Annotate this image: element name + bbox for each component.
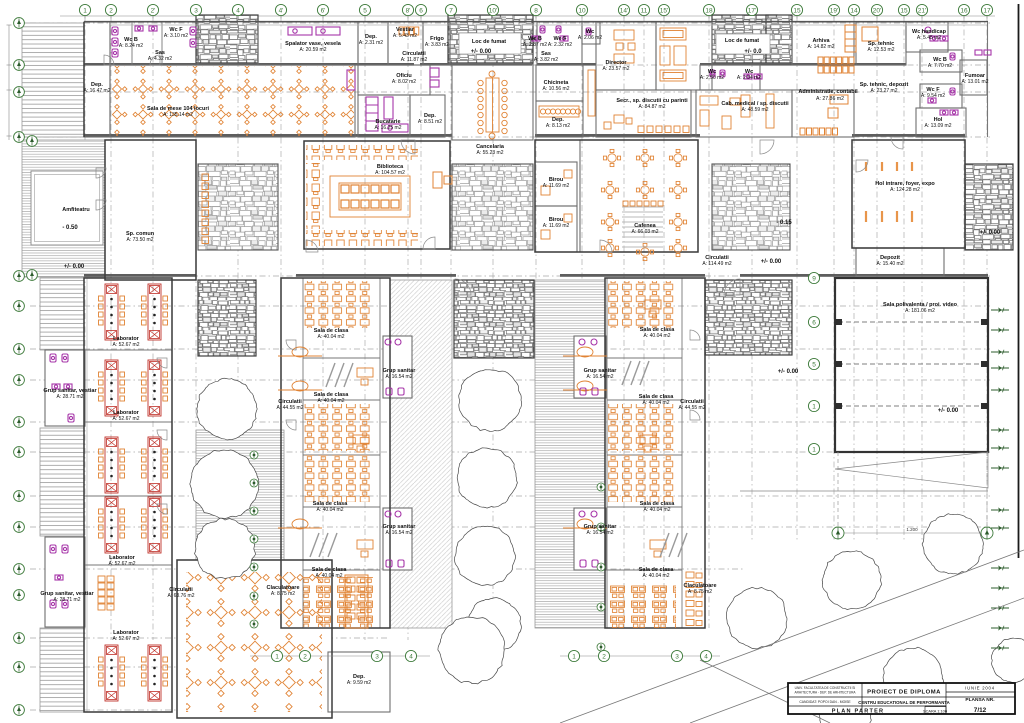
svg-text:+/- 0.00: +/- 0.00 [64, 264, 85, 270]
svg-text:Circulatii: Circulatii [278, 399, 302, 405]
svg-text:Depozit: Depozit [880, 255, 900, 261]
svg-text:Loc de fumat: Loc de fumat [725, 38, 759, 44]
svg-text:+/- 0.00: +/- 0.00 [980, 230, 1001, 236]
svg-text:Laborator: Laborator [113, 336, 140, 342]
svg-text:Fumoar: Fumoar [965, 73, 986, 79]
svg-text:14: 14 [850, 7, 858, 14]
svg-text:Sala de clasa: Sala de clasa [313, 501, 348, 507]
svg-text:CENTRU EDUCATIONAL DE PERFORMA: CENTRU EDUCATIONAL DE PERFORMANTA [858, 700, 949, 705]
svg-text:Sala de clasa: Sala de clasa [640, 501, 675, 507]
svg-text:10: 10 [578, 7, 586, 14]
svg-text:Sala de clasa: Sala de clasa [314, 328, 349, 334]
svg-text:A: 8.75 m2: A: 8.75 m2 [271, 591, 295, 597]
svg-text:16: 16 [960, 7, 968, 14]
svg-text:A: 20.59 m2: A: 20.59 m2 [300, 47, 327, 53]
svg-text:Administratie, contabil: Administratie, contabil [798, 89, 858, 95]
svg-text:A: 52.67 m2: A: 52.67 m2 [113, 416, 140, 422]
svg-text:1: 1 [275, 653, 279, 660]
svg-text:2: 2 [109, 7, 113, 14]
svg-text:Hol: Hol [934, 117, 943, 123]
svg-text:A: 8.24 m2: A: 8.24 m2 [119, 43, 143, 49]
svg-text:A: 12.53 m2: A: 12.53 m2 [868, 47, 895, 53]
svg-text:Wc: Wc [745, 69, 753, 75]
svg-text:8': 8' [406, 7, 411, 14]
svg-text:Grup sanitar, vestiar: Grup sanitar, vestiar [40, 591, 94, 597]
svg-text:A: 40.04 m2: A: 40.04 m2 [644, 333, 671, 339]
svg-text:A: 73.50 m2: A: 73.50 m2 [127, 237, 154, 243]
svg-text:A: 3.10 m2: A: 3.10 m2 [164, 33, 188, 39]
svg-text:1: 1 [572, 653, 576, 660]
svg-text:Sala polivalenta / proi. video: Sala polivalenta / proi. video [883, 302, 958, 308]
svg-text:Frigo: Frigo [430, 36, 444, 42]
svg-text:Laborator: Laborator [109, 555, 136, 561]
svg-text:A: 28.71 m2: A: 28.71 m2 [57, 394, 84, 400]
svg-text:Cafenea: Cafenea [634, 223, 656, 229]
svg-text:Sala de clasa: Sala de clasa [639, 567, 674, 573]
svg-text:A: 10.56 m2: A: 10.56 m2 [543, 86, 570, 92]
svg-text:Sp. tehnic: Sp. tehnic [868, 41, 894, 47]
svg-text:A: 40.04 m2: A: 40.04 m2 [318, 398, 345, 404]
svg-text:A: 5.43 m2: A: 5.43 m2 [393, 33, 417, 39]
svg-text:Amfiteatru: Amfiteatru [62, 207, 90, 213]
svg-text:Dep.: Dep. [552, 117, 564, 123]
svg-text:4: 4 [704, 653, 708, 660]
svg-text:1: 1 [812, 446, 816, 453]
svg-text:A: 11.69 m2: A: 11.69 m2 [543, 183, 570, 189]
svg-text:15: 15 [900, 7, 908, 14]
svg-text:Wc F: Wc F [926, 87, 940, 93]
svg-text:Grup sanitar, vestiar: Grup sanitar, vestiar [43, 388, 97, 394]
svg-text:A: 40.04 m2: A: 40.04 m2 [317, 507, 344, 513]
svg-text:A: 13.01 m2: A: 13.01 m2 [962, 79, 989, 85]
svg-text:17': 17' [748, 7, 756, 14]
svg-text:PLAN PARTER: PLAN PARTER [832, 708, 885, 714]
svg-text:A: 2.06 m2: A: 2.06 m2 [578, 35, 602, 41]
svg-text:7: 7 [449, 7, 453, 14]
svg-text:Vestiar: Vestiar [396, 27, 415, 33]
svg-text:SCARA 1:100: SCARA 1:100 [923, 708, 948, 713]
svg-text:Biblioteca: Biblioteca [377, 164, 404, 170]
svg-text:We F: We F [553, 36, 567, 42]
svg-text:A: 44.55 m2: A: 44.55 m2 [277, 405, 304, 411]
svg-text:2': 2' [151, 7, 156, 14]
svg-text:Dep.: Dep. [353, 674, 365, 680]
svg-text:Circulatii: Circulatii [680, 399, 704, 405]
svg-text:A: 40.04 m2: A: 40.04 m2 [643, 400, 670, 406]
svg-text:A: 40.04 m2: A: 40.04 m2 [318, 334, 345, 340]
svg-text:Circulatii: Circulatii [705, 255, 729, 261]
svg-text:CANDIDAT: POPOI DAN - MOISE: CANDIDAT: POPOI DAN - MOISE [799, 700, 851, 704]
svg-text:1.200: 1.200 [906, 527, 918, 532]
svg-text:+/- 0.00: +/- 0.00 [761, 259, 782, 265]
svg-text:11: 11 [641, 7, 648, 14]
svg-text:Loc de fumat: Loc de fumat [472, 39, 506, 45]
svg-text:A: 16.54 m2: A: 16.54 m2 [587, 374, 614, 380]
svg-text:Claculatoare: Claculatoare [683, 583, 716, 589]
svg-text:Director: Director [605, 60, 627, 66]
svg-text:21': 21' [918, 7, 926, 14]
svg-text:Oficiu: Oficiu [396, 73, 412, 79]
svg-text:Chicineta: Chicineta [544, 80, 570, 86]
svg-text:A: 23.27 m2: A: 23.27 m2 [871, 88, 898, 94]
svg-text:3: 3 [675, 653, 679, 660]
svg-text:Grup sanitar: Grup sanitar [584, 368, 618, 374]
svg-text:A: 52.67 m2: A: 52.67 m2 [113, 342, 140, 348]
svg-text:Dep.: Dep. [91, 82, 103, 88]
svg-text:10': 10' [489, 7, 497, 14]
svg-text:Spalator vase, vesela: Spalator vase, vesela [285, 41, 342, 47]
svg-text:5: 5 [812, 361, 816, 368]
svg-text:A: 40.04 m2: A: 40.04 m2 [316, 573, 343, 579]
svg-text:A: 40.04 m2: A: 40.04 m2 [643, 573, 670, 579]
svg-text:A: 16.54 m2: A: 16.54 m2 [587, 530, 614, 536]
svg-text:Sala de clasa: Sala de clasa [639, 394, 674, 400]
svg-text:A: 16.54 m2: A: 16.54 m2 [386, 374, 413, 380]
svg-text:4: 4 [409, 653, 413, 660]
svg-text:A: 124.28 m2: A: 124.28 m2 [890, 187, 920, 193]
svg-text:+/- 0.00: +/- 0.00 [778, 369, 799, 375]
svg-text:Circulatii: Circulatii [402, 51, 426, 57]
svg-text:Dep.: Dep. [365, 34, 377, 40]
svg-text:A: 48.59 m2: A: 48.59 m2 [742, 107, 769, 113]
svg-text:4: 4 [236, 7, 240, 14]
svg-text:A: 104.57 m2: A: 104.57 m2 [375, 170, 405, 176]
svg-text:+/- 0.00: +/- 0.00 [938, 408, 959, 414]
svg-text:A: 66.03 m2: A: 66.03 m2 [632, 229, 659, 235]
svg-text:A: 114.49 m2: A: 114.49 m2 [702, 261, 732, 267]
svg-text:17: 17 [983, 7, 991, 14]
svg-text:A: 3.82 m2: A: 3.82 m2 [534, 57, 558, 63]
svg-text:Sala de clasa: Sala de clasa [640, 327, 675, 333]
svg-text:7/12: 7/12 [974, 707, 987, 714]
svg-text:A: 4.32 m2: A: 4.32 m2 [148, 56, 172, 62]
svg-text:Secr., sp. discutii cu parinti: Secr., sp. discutii cu parinti [616, 98, 688, 104]
svg-text:Arhiva: Arhiva [812, 38, 830, 44]
svg-text:1: 1 [83, 7, 87, 14]
svg-text:A: 8.51 m2: A: 8.51 m2 [418, 119, 442, 125]
svg-text:A: 2.50 m2: A: 2.50 m2 [700, 75, 724, 81]
svg-text:Grup sanitar: Grup sanitar [383, 524, 417, 530]
svg-text:Wc B: Wc B [933, 57, 947, 63]
svg-text:A: 2.87 m2: A: 2.87 m2 [523, 42, 547, 48]
svg-text:- 0.15: - 0.15 [776, 220, 792, 226]
svg-text:A: 16.25 m2: A: 16.25 m2 [375, 125, 402, 131]
svg-text:18: 18 [705, 7, 713, 14]
svg-text:6: 6 [812, 319, 816, 326]
svg-text:We B: We B [528, 36, 542, 42]
svg-text:A: 135.14 m2: A: 135.14 m2 [163, 112, 193, 118]
svg-text:6: 6 [419, 7, 423, 14]
svg-text:A: 28.71 m2: A: 28.71 m2 [54, 597, 81, 603]
svg-text:Grup sanitar: Grup sanitar [584, 524, 618, 530]
svg-text:A: 16.54 m2: A: 16.54 m2 [386, 530, 413, 536]
svg-text:A: 63.76 m2: A: 63.76 m2 [168, 593, 195, 599]
svg-text:15: 15 [793, 7, 801, 14]
svg-text:A: 14.82 m2: A: 14.82 m2 [808, 44, 835, 50]
svg-text:A: 2.31 m2: A: 2.31 m2 [359, 40, 383, 46]
svg-text:A: 40.04 m2: A: 40.04 m2 [644, 507, 671, 513]
svg-text:A: 27.86 m2: A: 27.86 m2 [816, 96, 844, 102]
svg-text:A: 3.83 m2: A: 3.83 m2 [425, 42, 449, 48]
svg-text:A: 9.54 m2: A: 9.54 m2 [921, 93, 945, 99]
svg-text:Wc F: Wc F [169, 27, 183, 33]
svg-text:5: 5 [363, 7, 367, 14]
svg-text:Laborator: Laborator [113, 630, 140, 636]
svg-text:A: 84.87 m2: A: 84.87 m2 [639, 104, 666, 110]
svg-text:ARHITECTURA - DEP. DE ARHITECT: ARHITECTURA - DEP. DE ARHITECTURA [794, 691, 856, 695]
svg-text:PLANSA NR.: PLANSA NR. [965, 697, 994, 703]
svg-text:A: 2.54 m2: A: 2.54 m2 [737, 75, 761, 81]
svg-text:2: 2 [602, 653, 606, 660]
svg-text:Wc: Wc [708, 69, 716, 75]
svg-text:Birou: Birou [549, 217, 563, 223]
svg-text:Dep.: Dep. [424, 113, 436, 119]
svg-text:Laborator: Laborator [113, 410, 140, 416]
svg-text:A: 7.70 m2: A: 7.70 m2 [928, 63, 952, 69]
svg-text:Wc B: Wc B [124, 37, 138, 43]
svg-text:Sala de clasa: Sala de clasa [312, 567, 347, 573]
svg-text:Wc: Wc [586, 29, 594, 35]
svg-text:A: 16.47 m2: A: 16.47 m2 [84, 88, 111, 94]
svg-text:1: 1 [812, 403, 816, 410]
svg-text:A: 52.67 m2: A: 52.67 m2 [109, 561, 136, 567]
svg-text:A: 8.13 m2: A: 8.13 m2 [546, 123, 570, 129]
svg-text:Sas: Sas [155, 50, 165, 56]
svg-text:3: 3 [375, 653, 379, 660]
svg-text:A: 11.69 m2: A: 11.69 m2 [543, 223, 570, 229]
svg-text:Birou: Birou [549, 177, 563, 183]
svg-text:Sp. comun: Sp. comun [126, 231, 155, 237]
svg-text:A: 52.67 m2: A: 52.67 m2 [113, 636, 140, 642]
svg-text:19': 19' [830, 7, 838, 14]
svg-text:A: 2.32 m2: A: 2.32 m2 [548, 42, 572, 48]
svg-text:9: 9 [812, 275, 816, 282]
svg-text:6': 6' [321, 7, 326, 14]
svg-text:- 0.50: - 0.50 [62, 225, 78, 231]
svg-text:14': 14' [620, 7, 628, 14]
svg-text:A: 8.02 m2: A: 8.02 m2 [392, 79, 416, 85]
svg-text:IUNIE 2004: IUNIE 2004 [965, 686, 995, 691]
svg-text:Wc handicap: Wc handicap [912, 29, 947, 35]
svg-text:A: 5.45 m2: A: 5.45 m2 [917, 35, 941, 41]
svg-text:+/- 0.00: +/- 0.00 [471, 49, 492, 55]
svg-text:Sala de mese 104 locuri: Sala de mese 104 locuri [147, 106, 210, 112]
svg-text:2: 2 [303, 653, 307, 660]
svg-text:Sala de clasa: Sala de clasa [314, 392, 349, 398]
svg-text:4': 4' [279, 7, 284, 14]
svg-text:A: 55.23 m2: A: 55.23 m2 [477, 150, 504, 156]
svg-text:8: 8 [534, 7, 538, 14]
svg-text:A: 13.09 m2: A: 13.09 m2 [925, 123, 952, 129]
svg-text:A: 8.75 m2: A: 8.75 m2 [688, 589, 712, 595]
svg-text:A: 44.55 m2: A: 44.55 m2 [679, 405, 706, 411]
svg-text:Cancelaria: Cancelaria [476, 144, 505, 150]
svg-text:15': 15' [660, 7, 668, 14]
svg-text:Grup sanitar: Grup sanitar [383, 368, 417, 374]
svg-text:Sas: Sas [541, 51, 551, 57]
svg-text:Circulatii: Circulatii [169, 587, 193, 593]
svg-text:Sp. tehnic, depozit: Sp. tehnic, depozit [860, 82, 909, 88]
svg-text:Claculatoare: Claculatoare [266, 585, 299, 591]
svg-text:A: 11.87 m2: A: 11.87 m2 [401, 57, 428, 63]
svg-text:A: 181.06 m2: A: 181.06 m2 [905, 308, 935, 314]
svg-text:Hol intrare, foyer, expo: Hol intrare, foyer, expo [875, 181, 935, 187]
svg-text:20': 20' [873, 7, 881, 14]
svg-text:3: 3 [194, 7, 198, 14]
svg-text:PROIECT DE DIPLOMA: PROIECT DE DIPLOMA [867, 690, 941, 696]
svg-text:UNIV. FACULTATEA DE CONSTRUCTI: UNIV. FACULTATEA DE CONSTRUCTII SI [795, 686, 856, 690]
svg-text:Bucatarie: Bucatarie [375, 119, 400, 125]
svg-text:Cab. medical / sp. discutii: Cab. medical / sp. discutii [721, 101, 789, 107]
svg-text:A: 23.57 m2: A: 23.57 m2 [603, 66, 630, 72]
svg-text:+/- 0.0: +/- 0.0 [744, 49, 762, 55]
svg-text:A: 9.59 m2: A: 9.59 m2 [347, 680, 371, 686]
svg-text:A: 15.40 m2: A: 15.40 m2 [877, 261, 904, 267]
